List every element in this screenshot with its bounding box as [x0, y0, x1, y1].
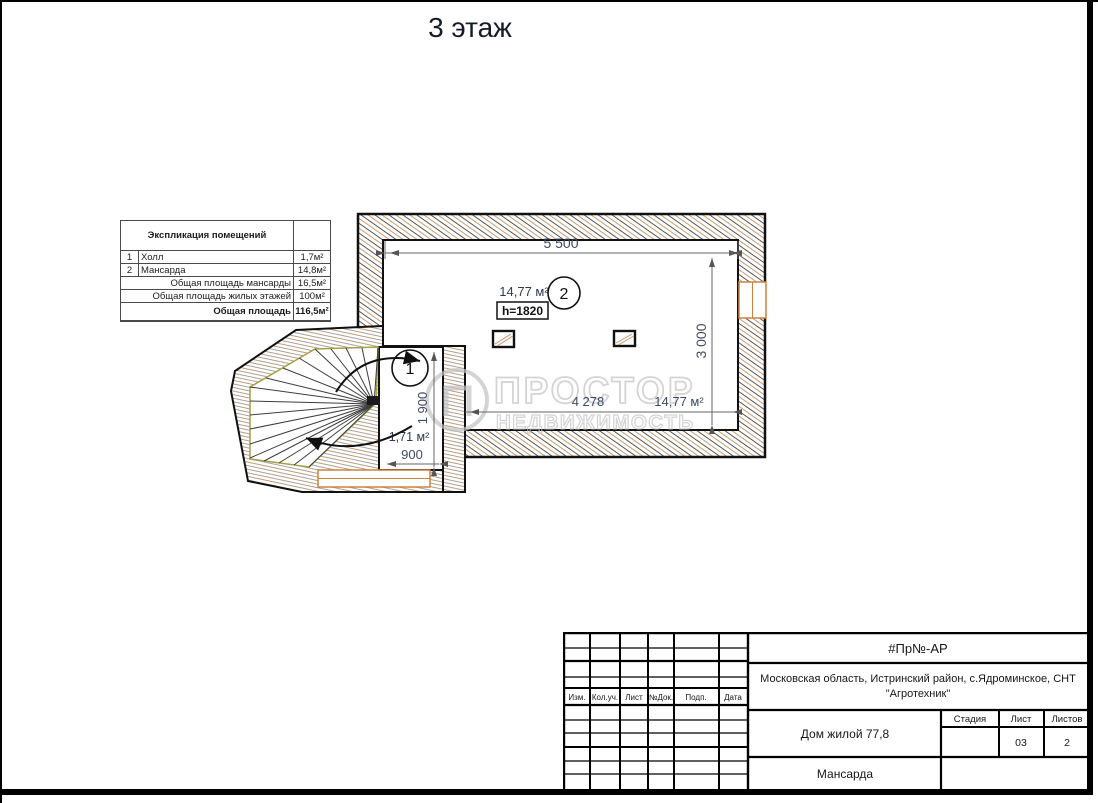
frame-left-line [0, 0, 2, 803]
object-name: Дом жилой 77,8 [801, 727, 890, 741]
sheets-value: 2 [1064, 737, 1070, 749]
col-izm: Изм. [568, 693, 585, 702]
col-list: Лист [625, 693, 643, 702]
watermark-line2: НЕДВИЖИМОСТЬ [496, 411, 694, 434]
dim-room1-height: 1 900 [415, 392, 430, 425]
room2-area-label: 14,77 м² [499, 284, 549, 299]
partition-wall [443, 346, 465, 492]
column-left [493, 331, 514, 347]
sheet-value: 03 [1015, 737, 1027, 749]
column-right [614, 331, 635, 346]
sheet-name: Мансарда [817, 767, 874, 781]
floor-plan-svg: ПРОСТОР НЕДВИЖИМОСТЬ 5 500 3 000 4 278 1… [225, 190, 790, 510]
dim-inner: 4 278 [572, 394, 605, 409]
dim-inner-area: 14,77 м² [654, 394, 704, 409]
height-note: h=1820 [502, 304, 543, 318]
col-koluch: Кол.уч. [592, 693, 618, 702]
page-title: 3 этаж [355, 12, 585, 44]
doc-code: #Пр№-АР [888, 641, 947, 656]
title-block: #Пр№-АР Московская область, Истринский р… [563, 632, 1093, 792]
sheet-label: Лист [1011, 714, 1032, 725]
drawing-sheet: { "page": { "title": "3 этаж" }, "explic… [0, 0, 1098, 803]
room1-area-label: 1,71 м² [389, 430, 430, 444]
dim-top: 5 500 [543, 235, 578, 251]
stage-label: Стадия [954, 714, 986, 725]
col-podp: Подп. [685, 693, 706, 702]
room-row-number: 2 [121, 264, 139, 277]
project-address-line2: "Агротехник" [886, 688, 951, 700]
window-right [739, 282, 766, 318]
room1-number: 1 [406, 361, 415, 378]
col-data: Дата [724, 693, 742, 702]
dim-room1-width: 900 [401, 447, 423, 462]
project-address-line1: Московская область, Истринский район, с.… [760, 673, 1076, 685]
dim-right: 3 000 [693, 323, 709, 358]
window-bottom [318, 470, 430, 487]
sheets-label: Листов [1052, 714, 1083, 725]
col-ndok: №Док. [649, 693, 673, 702]
room2-number: 2 [560, 286, 569, 303]
frame-top-line [0, 0, 1098, 2]
room-row-number: 1 [121, 251, 139, 264]
